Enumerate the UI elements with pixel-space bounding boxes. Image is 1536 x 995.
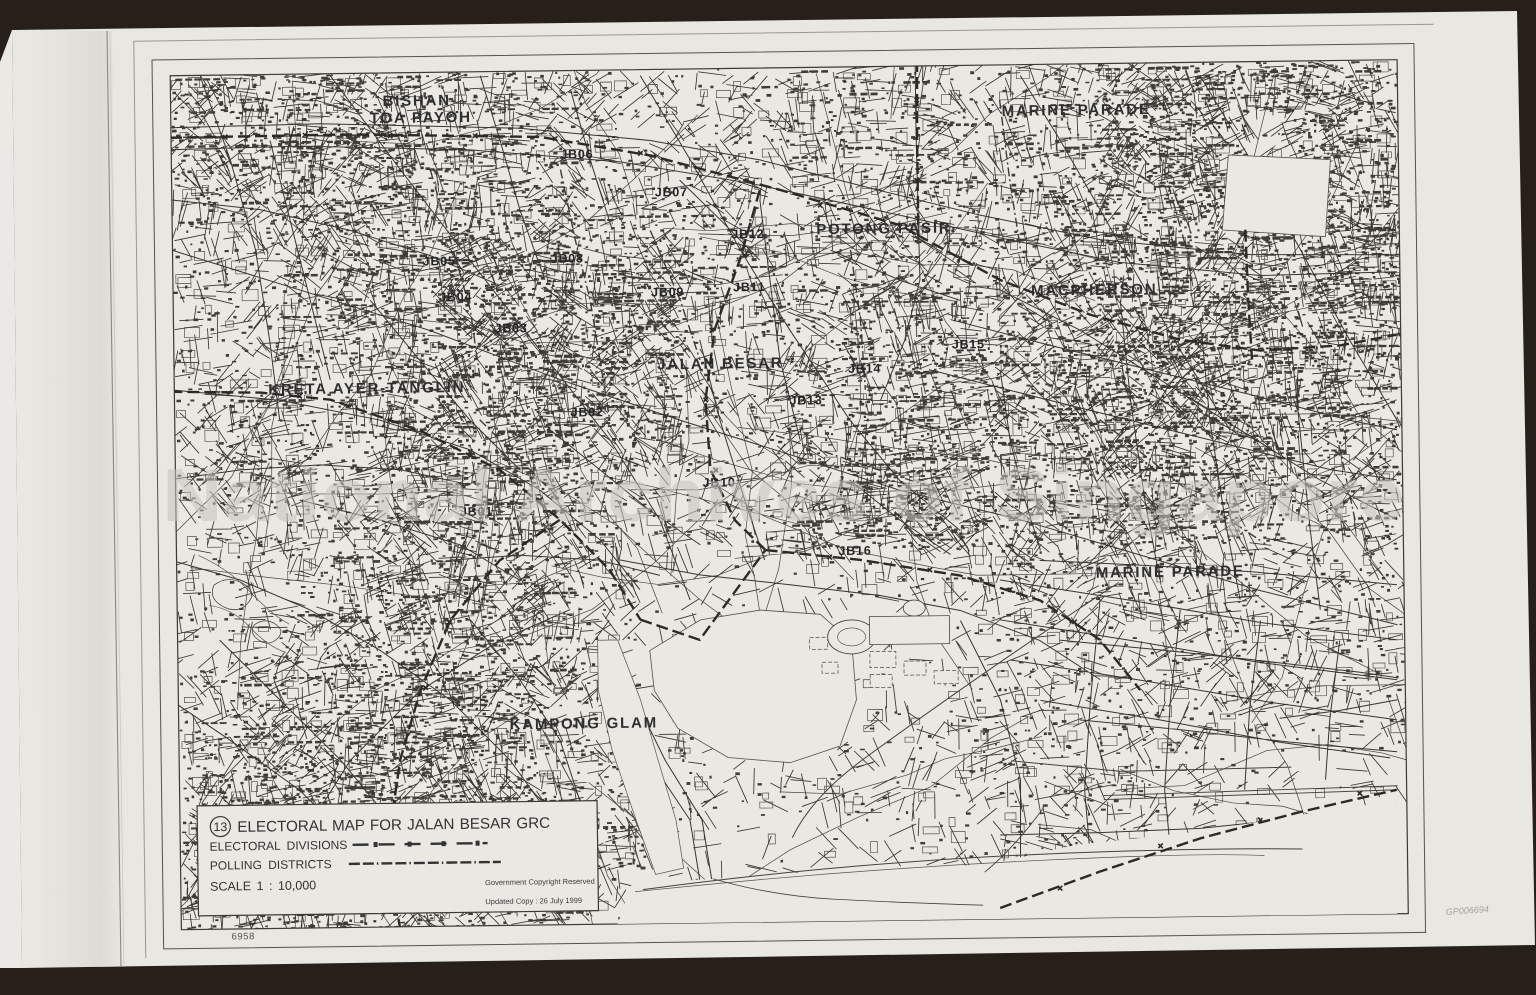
svg-text:JB05: JB05 <box>423 254 456 268</box>
svg-text:National Archives of Singapore: National Archives of Singapore <box>162 453 1405 537</box>
svg-text:ELECTORAL DIVISIONS: ELECTORAL DIVISIONS <box>210 838 348 854</box>
svg-text:JB09: JB09 <box>651 285 684 299</box>
svg-text:POTONG PASIR: POTONG PASIR <box>816 220 951 239</box>
svg-text:13: 13 <box>213 820 227 834</box>
svg-text:JB16: JB16 <box>838 544 871 558</box>
svg-text:TOA PAYOH: TOA PAYOH <box>370 109 472 127</box>
svg-text:BISHAN-: BISHAN- <box>382 92 457 110</box>
svg-text:JB13: JB13 <box>789 393 822 407</box>
svg-text:Updated Copy : 26 July 1999: Updated Copy : 26 July 1999 <box>485 896 582 906</box>
svg-text:JB02: JB02 <box>571 405 604 419</box>
svg-text:6958: 6958 <box>231 931 255 942</box>
svg-text:JB15: JB15 <box>952 337 985 351</box>
svg-text:MARINE PARADE: MARINE PARADE <box>1096 563 1245 582</box>
svg-text:JB12: JB12 <box>731 227 764 241</box>
svg-text:JB14: JB14 <box>848 361 881 375</box>
svg-text:MACPHERSON: MACPHERSON <box>1031 281 1158 300</box>
svg-text:POLLING DISTRICTS: POLLING DISTRICTS <box>210 857 332 873</box>
svg-text:KAMPONG GLAM: KAMPONG GLAM <box>510 714 658 733</box>
svg-text:MARINE PARADE: MARINE PARADE <box>1002 101 1151 120</box>
svg-text:Government Copyright Reserved: Government Copyright Reserved <box>485 877 595 887</box>
svg-text:JALAN BESAR: JALAN BESAR <box>657 355 784 374</box>
svg-text:SCALE 1 : 10,000: SCALE 1 : 10,000 <box>210 878 316 893</box>
svg-text:KRETA AYER-TANGLIN: KRETA AYER-TANGLIN <box>268 379 465 399</box>
svg-text:JB04: JB04 <box>439 290 472 304</box>
svg-text:JB11: JB11 <box>733 280 766 294</box>
svg-text:JB07: JB07 <box>655 185 688 199</box>
svg-text:JB08: JB08 <box>551 251 584 265</box>
svg-text:JB03: JB03 <box>494 321 527 335</box>
svg-text:JB06: JB06 <box>560 147 593 161</box>
